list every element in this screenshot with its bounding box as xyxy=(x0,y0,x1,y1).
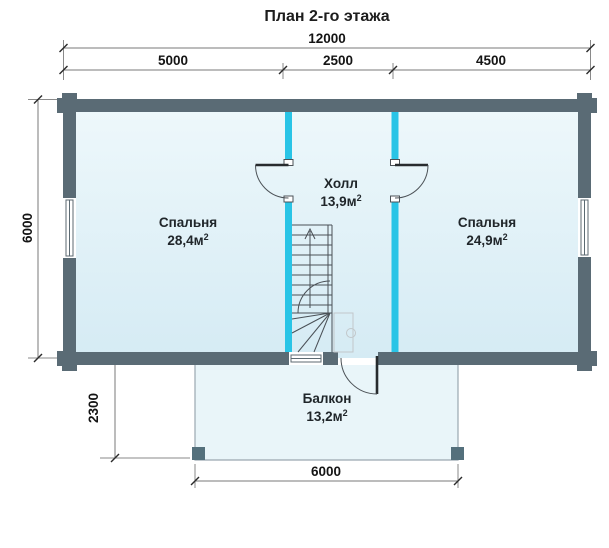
floor-plan-page: План 2-го этажа 12000 5000 2500 4500 600… xyxy=(0,0,609,548)
balcony-post-right xyxy=(451,447,464,460)
room-area-sup: 2 xyxy=(357,193,362,203)
room-name-balcony: Балкон xyxy=(303,391,352,406)
dimension-balcony-width: 6000 xyxy=(311,464,341,479)
bottom-dimensions: 6000 xyxy=(191,464,462,488)
room-area-sup: 2 xyxy=(503,232,508,242)
dimension-balcony-depth: 2300 xyxy=(86,393,101,423)
room-area-bedroom-left: 28,4м2 xyxy=(167,232,208,248)
corner-tab xyxy=(57,98,65,113)
corner-tab xyxy=(589,351,597,366)
wall-right-upper xyxy=(578,99,591,198)
wall-bottom-left xyxy=(63,352,289,365)
room-area-value: 28,4м xyxy=(167,233,203,248)
dimension-right-span: 4500 xyxy=(476,53,506,68)
door-jamb xyxy=(284,196,293,202)
room-name-bedroom-right: Спальня xyxy=(458,215,516,230)
partition-right-upper xyxy=(392,112,399,160)
room-area-sup: 2 xyxy=(204,232,209,242)
balcony-post-left xyxy=(192,447,205,460)
partition-right-lower xyxy=(392,202,399,352)
door-jamb xyxy=(391,196,400,202)
wall-left-upper xyxy=(63,99,76,198)
room-area-value: 24,9м xyxy=(466,233,502,248)
wall-left-lower xyxy=(63,258,76,365)
wall-bottom-right xyxy=(378,352,591,365)
dimension-left-span: 5000 xyxy=(158,53,188,68)
room-name-hall: Холл xyxy=(324,176,358,191)
window-bottom xyxy=(289,352,323,365)
partition-left-lower xyxy=(285,202,292,352)
room-area-hall: 13,9м2 xyxy=(320,193,361,209)
room-area-sup: 2 xyxy=(343,408,348,418)
dimension-total-width: 12000 xyxy=(308,31,346,46)
wall-right-lower xyxy=(578,257,591,365)
wall-bottom-middle xyxy=(323,352,338,365)
plan-title: План 2-го этажа xyxy=(264,8,389,25)
dimension-middle-span: 2500 xyxy=(323,53,353,68)
top-dimensions: 12000 5000 2500 4500 xyxy=(60,31,595,80)
room-area-bedroom-right: 24,9м2 xyxy=(466,232,507,248)
window-right xyxy=(578,198,591,257)
corner-tab xyxy=(57,351,65,366)
wall-top xyxy=(63,99,591,112)
floor-plan-drawing: План 2-го этажа 12000 5000 2500 4500 600… xyxy=(0,0,609,548)
dimension-house-depth: 6000 xyxy=(20,213,35,243)
corner-tab xyxy=(589,98,597,113)
window-left xyxy=(63,198,76,258)
room-area-value: 13,9м xyxy=(320,194,356,209)
partition-left-upper xyxy=(285,112,292,160)
room-name-bedroom-left: Спальня xyxy=(159,215,217,230)
room-area-balcony: 13,2м2 xyxy=(306,408,347,424)
room-area-value: 13,2м xyxy=(306,409,342,424)
